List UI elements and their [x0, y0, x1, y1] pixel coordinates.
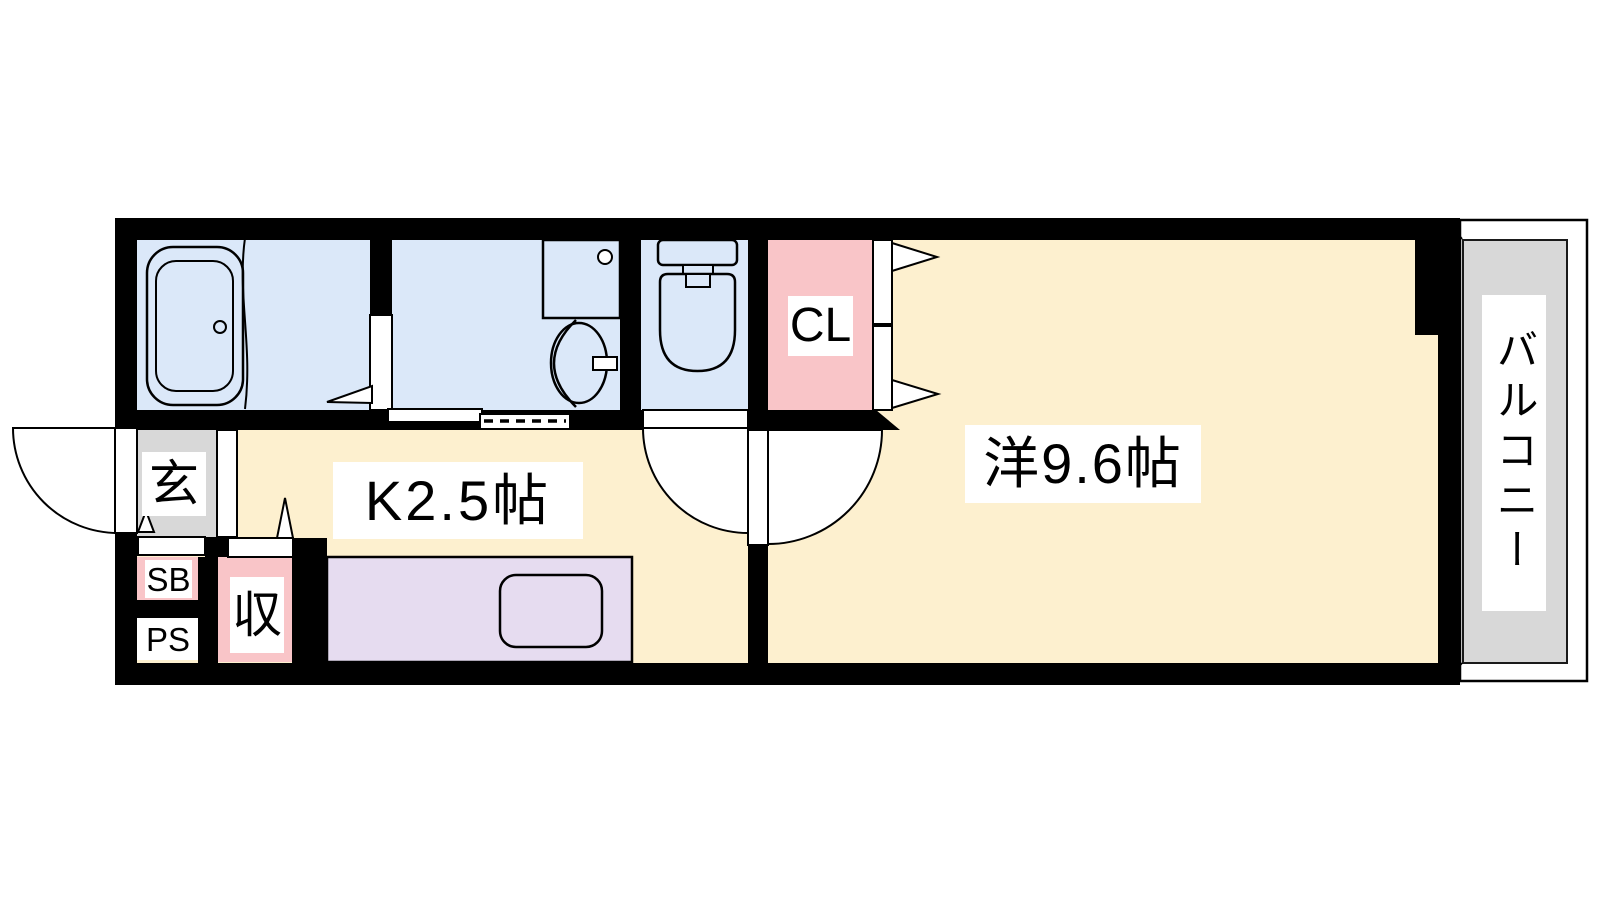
entrance-label: 玄: [142, 452, 206, 516]
entrance-door-leaf: [115, 428, 137, 533]
toilet-bowl: [660, 274, 735, 371]
shoebox-label: SB: [145, 560, 192, 598]
entrance-step-strip: [138, 537, 205, 555]
floorplan-drawing: [0, 0, 1600, 900]
wall-right: [1438, 240, 1460, 685]
toilet-hinge: [683, 265, 713, 274]
bathroom-floor: [137, 237, 370, 410]
toilet-tank: [658, 240, 737, 265]
wall-washroom-toilet: [620, 238, 641, 430]
washer-faucet: [598, 250, 612, 264]
toilet-icon: [658, 240, 737, 371]
bathroom-door-leaf: [370, 315, 392, 410]
wall-closet-south: [768, 410, 876, 430]
storage-label: 収: [230, 577, 284, 653]
storage-door-strip: [228, 538, 293, 557]
pipe-space-label: PS: [140, 619, 196, 660]
toilet-seat-notch: [686, 274, 710, 287]
balcony-label: バルコニー: [1482, 295, 1546, 611]
washroom-sliding-panel-left: [388, 409, 482, 422]
entrance-door-swing-arc: [13, 428, 118, 533]
closet-door-panel-bottom: [873, 326, 892, 410]
closet-label: CL: [788, 296, 853, 356]
western-room-label: 洋9.6帖: [965, 425, 1201, 503]
wall-bottom: [115, 663, 1460, 685]
wall-top: [115, 218, 1458, 240]
closet-door-panel-top: [873, 240, 892, 324]
room-door-leaf: [748, 430, 768, 545]
entrance-kitchen-opening: [217, 430, 237, 537]
toilet-door-leaf: [643, 410, 748, 428]
kitchen-label: K2.5帖: [333, 462, 583, 539]
wall-strip-divider: [205, 537, 228, 557]
kitchen-counter: [327, 557, 632, 662]
wall-shoebox-storage: [198, 557, 218, 663]
wall-sb-ps-divider: [137, 600, 198, 618]
washbasin-faucet: [593, 357, 617, 370]
wall-storage-right: [292, 538, 327, 663]
wall-bath-washroom: [370, 237, 392, 317]
floorplan: 玄 SB PS 収 K2.5帖 CL 洋9.6帖 バルコニー: [0, 0, 1600, 900]
